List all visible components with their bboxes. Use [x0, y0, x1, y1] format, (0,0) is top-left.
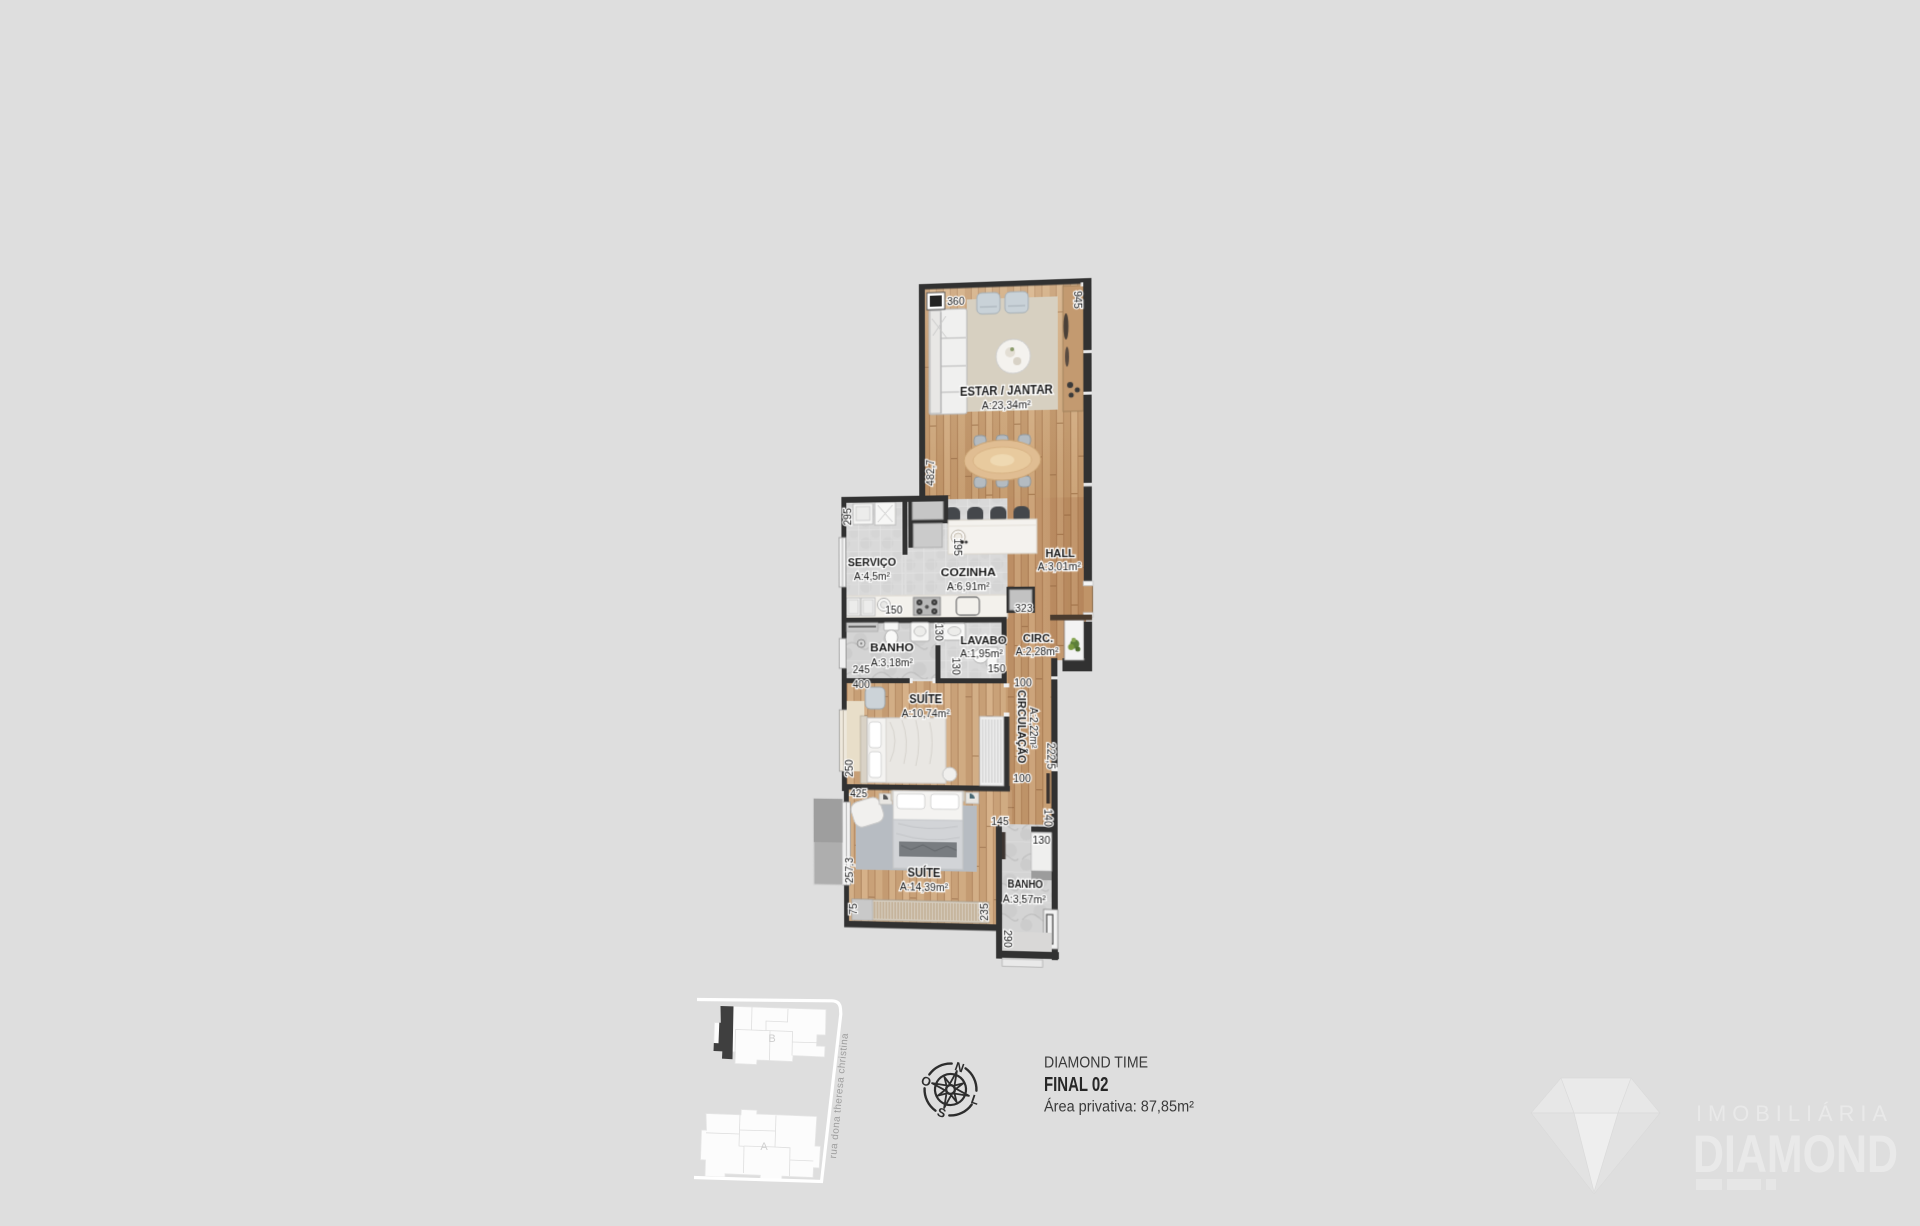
svg-text:DIAMOND TIME: DIAMOND TIME	[1044, 1055, 1148, 1072]
svg-text:B: B	[768, 1033, 775, 1045]
svg-text:FINAL 02: FINAL 02	[1044, 1074, 1109, 1096]
svg-text:L: L	[969, 1092, 981, 1108]
svg-text:N: N	[953, 1059, 966, 1075]
svg-text:A: A	[760, 1141, 768, 1153]
svg-text:DIAMOND: DIAMOND	[1693, 1125, 1898, 1184]
svg-text:S: S	[935, 1105, 947, 1121]
svg-text:O: O	[919, 1073, 933, 1089]
svg-text:Área privativa: 87,85m²: Área privativa: 87,85m²	[1044, 1099, 1194, 1116]
svg-text:IMOBILIÁRIA: IMOBILIÁRIA	[1696, 1101, 1893, 1126]
